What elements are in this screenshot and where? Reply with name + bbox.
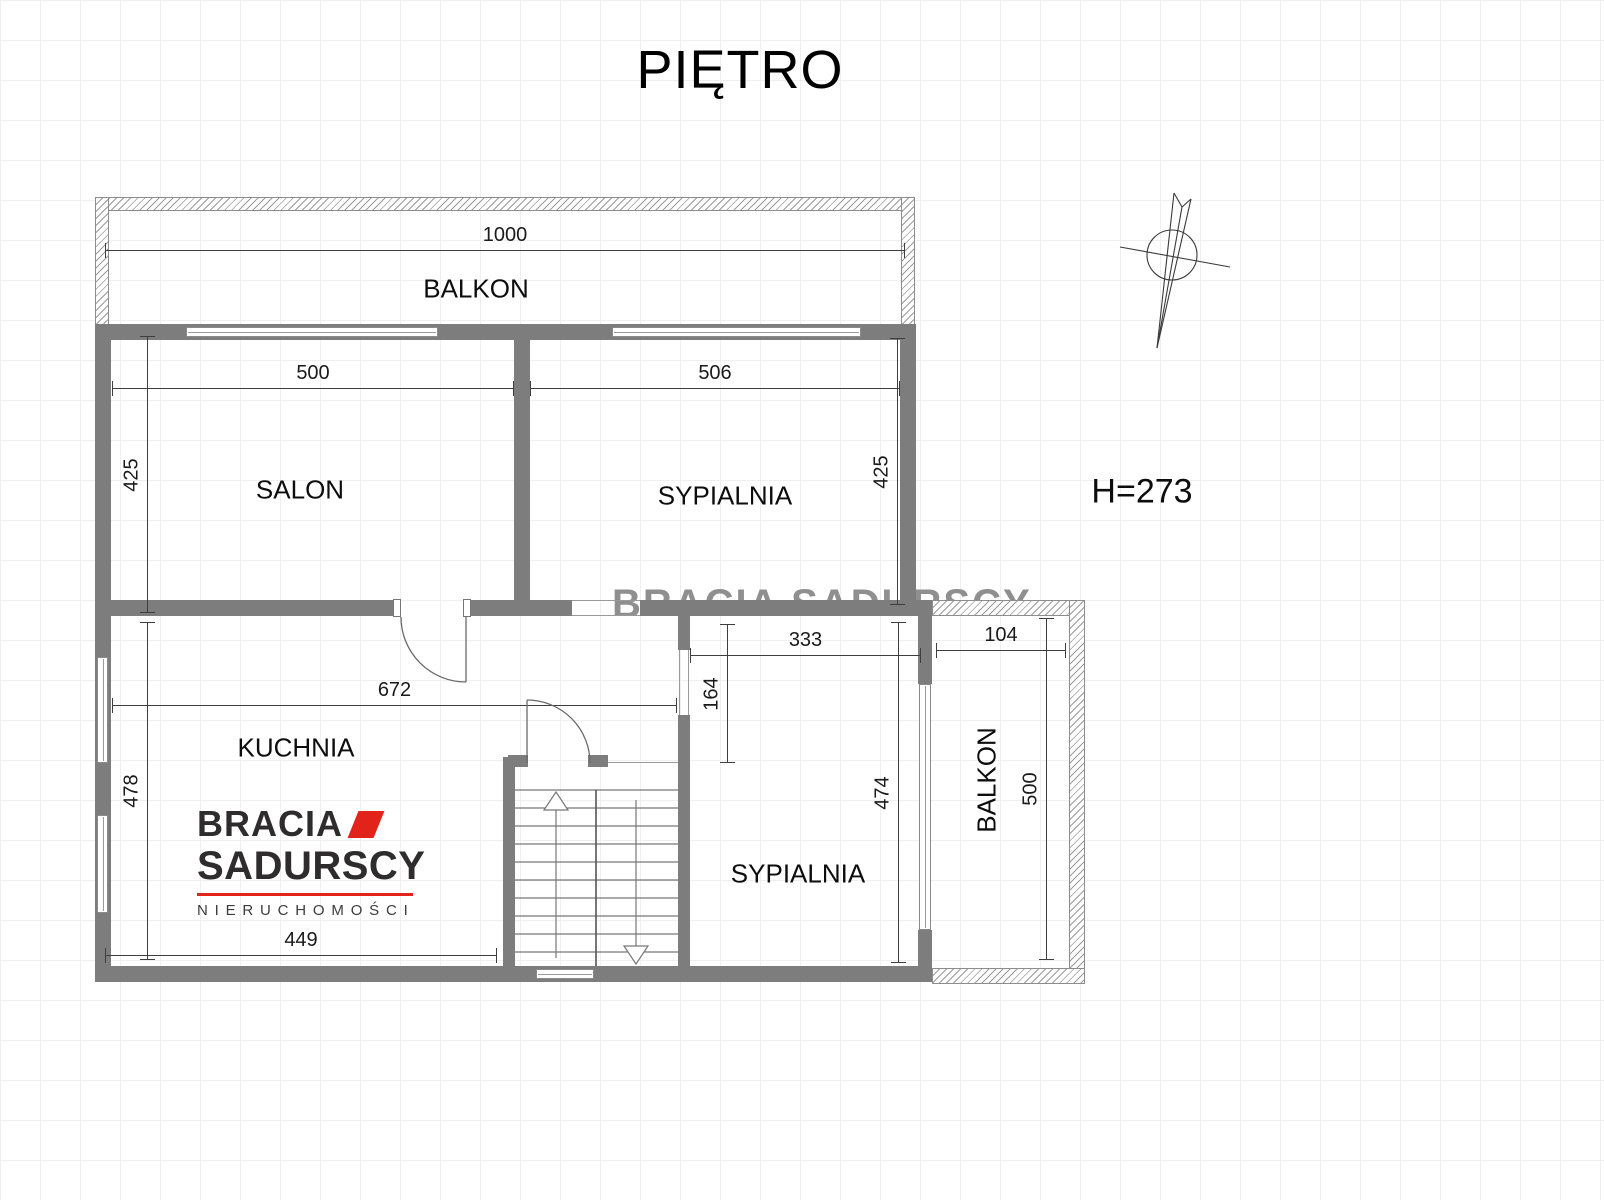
north-arrow-icon — [1120, 193, 1230, 348]
stairs-up-arrow-icon — [544, 792, 568, 958]
staircase — [515, 790, 678, 966]
floor-plan-canvas: PIĘTRO BRACIA SADURSCY 1000 500 — [0, 0, 1604, 1200]
door-hall-icon — [401, 616, 466, 682]
door-stairs-icon — [527, 700, 590, 763]
plan-vector-overlay — [0, 0, 1604, 1200]
stairs-down-arrow-icon — [624, 800, 648, 964]
